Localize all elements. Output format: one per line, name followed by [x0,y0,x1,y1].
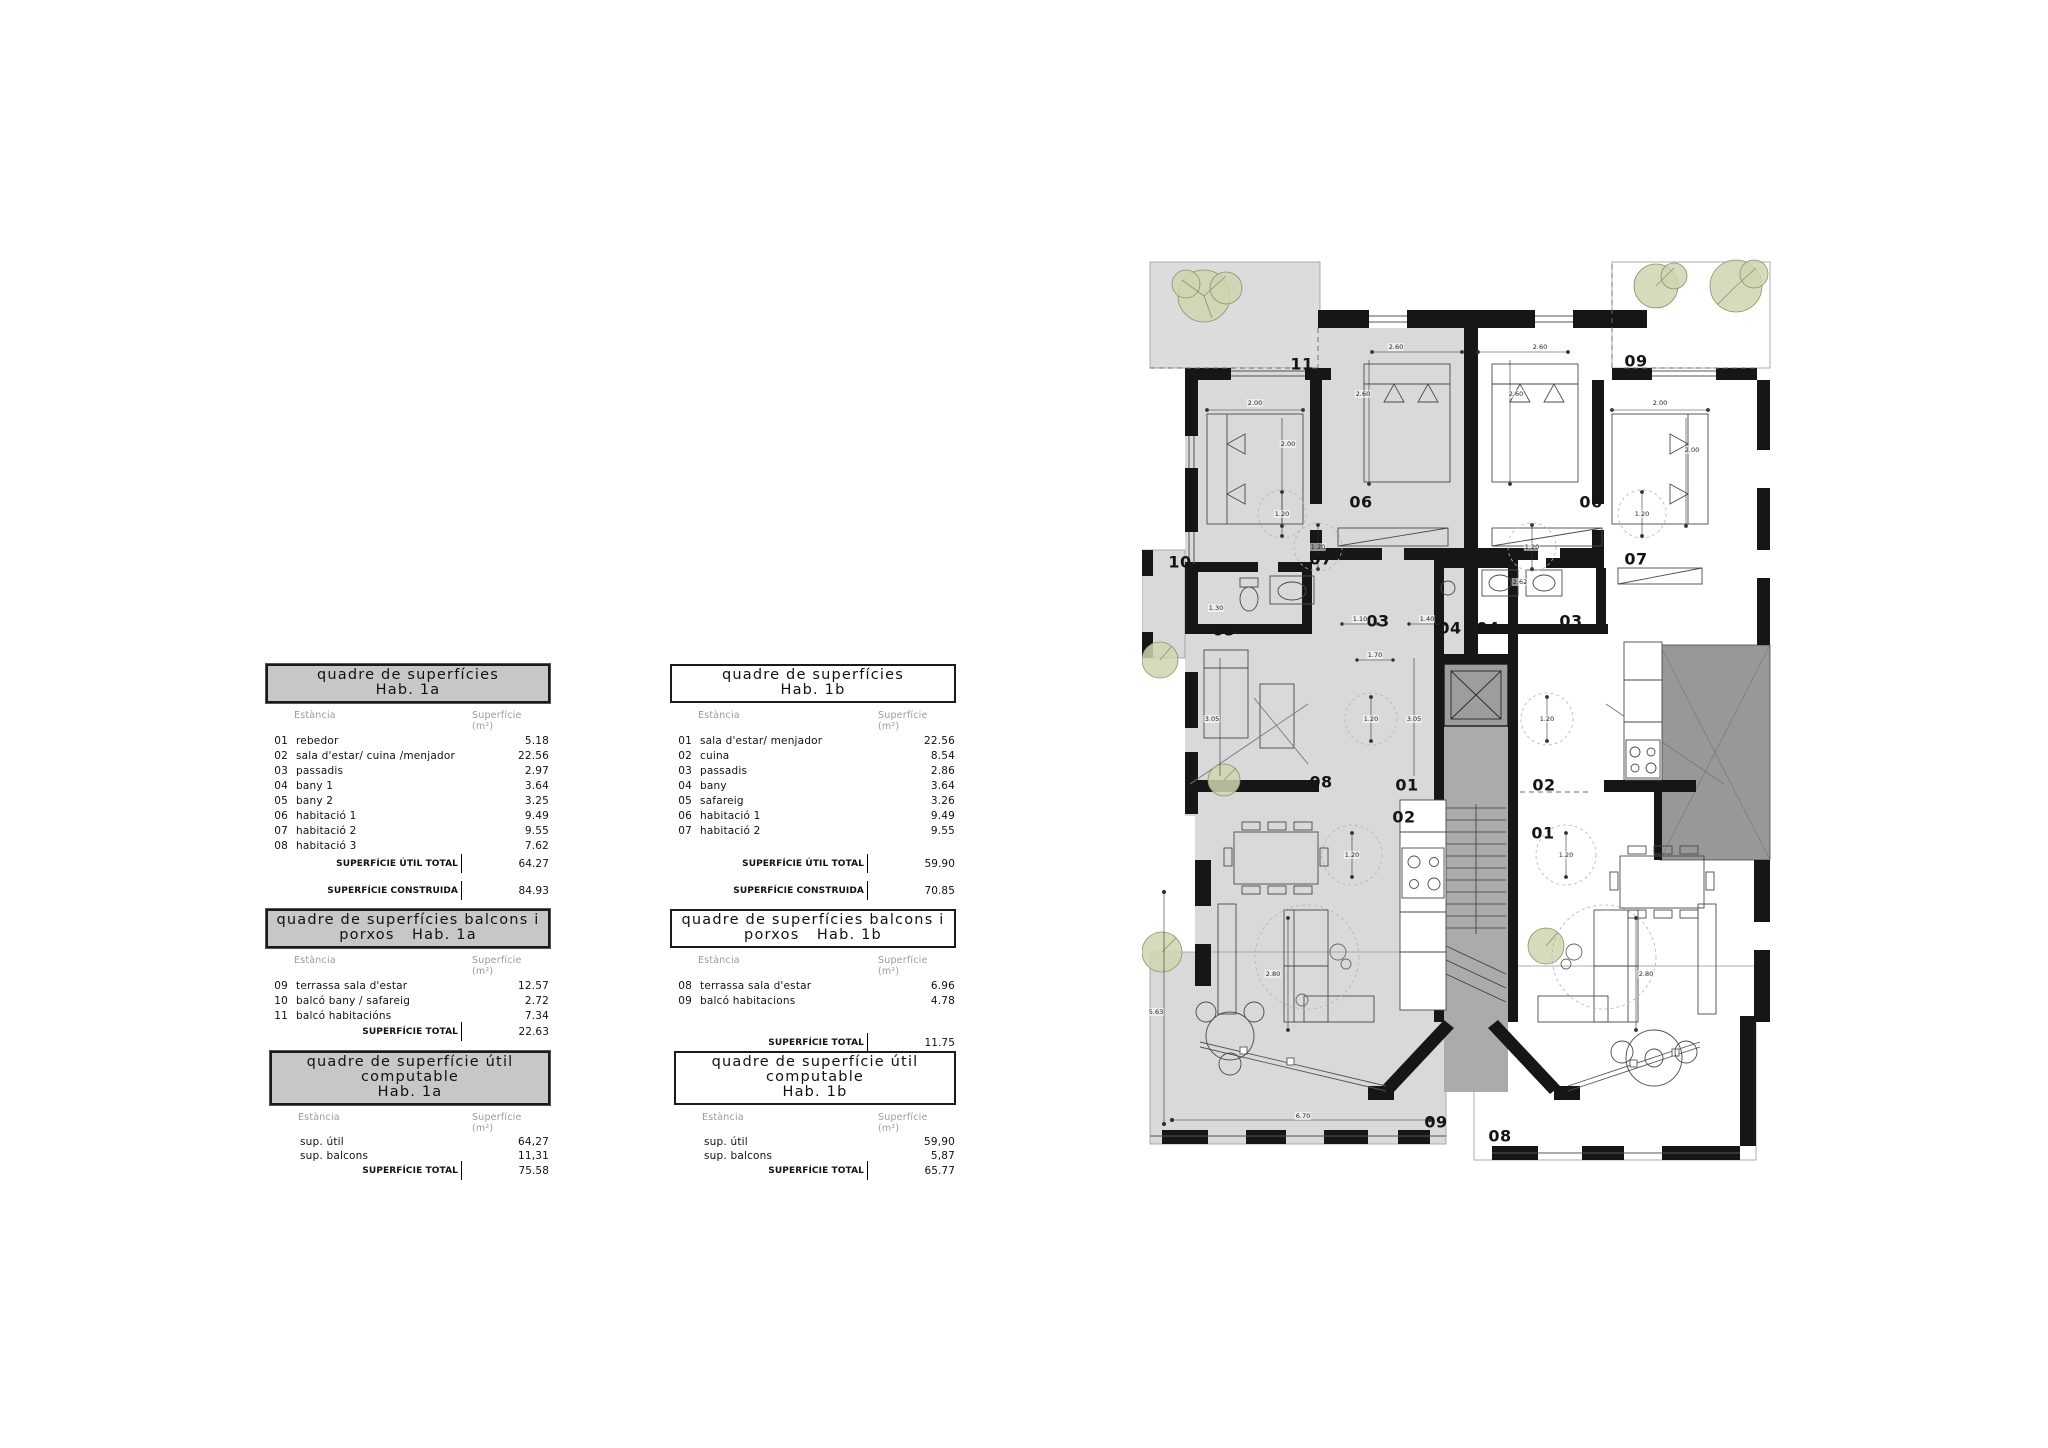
table-header: EstànciaSuperfície(m²) [266,710,550,732]
table-balcons-1a: quadre de superfícies balcons iporxos Ha… [266,909,550,1039]
table-row: sup. balcons11,31 [270,1150,550,1164]
table-title: quadre de superfíciesHab. 1b [670,664,956,703]
table-title: quadre de superfície útil computableHab.… [674,1051,956,1105]
table-row: 03passadis2.86 [670,764,956,779]
table-total-row: SUPERFÍCIE TOTAL22.63 [266,1025,550,1039]
table-header: EstànciaSuperfície(m²) [674,1112,956,1134]
porch-dark [1660,645,1770,860]
bed-icon [1492,364,1578,482]
plan-sheet: quadre de superfíciesHab. 1aEstànciaSupe… [0,0,2048,1448]
table-row: 07habitació 29.55 [266,824,550,839]
floor-plan-drawing [1142,252,1772,1187]
bed-icon [1612,414,1708,524]
table-row: 08habitació 37.62 [266,839,550,854]
table-row: 02cuina8.54 [670,749,956,764]
table-title: quadre de superfíciesHab. 1a [266,664,550,703]
table-superficies-1b: quadre de superfíciesHab. 1bEstànciaSupe… [670,664,956,898]
table-total-row: SUPERFÍCIE CONSTRUIDA70.85 [670,884,956,898]
sink-icon [1526,570,1562,596]
wardrobe-icon [1618,568,1702,584]
table-header: EstànciaSuperfície(m²) [270,1112,550,1134]
table-row: 04bany 13.64 [266,779,550,794]
table-row: 09balcó habitacions4.78 [670,994,956,1009]
table-row: 06habitació 19.49 [266,809,550,824]
table-row: sup. útil59,90 [674,1136,956,1150]
table-util-computable-1a: quadre de superfície útil computableHab.… [270,1051,550,1178]
table-row: 05bany 23.25 [266,794,550,809]
table-row: 07habitació 29.55 [670,824,956,839]
table-row: 10balcó bany / safareig2.72 [266,994,550,1009]
table-row: sup. balcons5,87 [674,1150,956,1164]
table-row: 05safareig3.26 [670,794,956,809]
table-title: quadre de superfícies balcons iporxos Ha… [266,909,550,948]
table-header: EstànciaSuperfície(m²) [266,955,550,977]
kitchen-counter [1624,642,1662,780]
table-row: 02sala d'estar/ cuina /menjador22.56 [266,749,550,764]
table-row: 06habitació 19.49 [670,809,956,824]
table-row: 11balcó habitacións7.34 [266,1009,550,1024]
table-total-row: SUPERFÍCIE CONSTRUIDA84.93 [266,884,550,898]
table-total-row: SUPERFÍCIE ÚTIL TOTAL59.90 [670,857,956,871]
table-header: EstànciaSuperfície(m²) [670,710,956,732]
table-total-row: SUPERFÍCIE ÚTIL TOTAL64.27 [266,857,550,871]
table-row: 01sala d'estar/ menjador22.56 [670,734,956,749]
table-row: 01rebedor5.18 [266,734,550,749]
table-title: quadre de superfícies balcons iporxos Ha… [670,909,956,948]
table-row: sup. útil64,27 [270,1136,550,1150]
table-total-row: SUPERFÍCIE TOTAL75.58 [270,1164,550,1178]
table-superficies-1a: quadre de superfíciesHab. 1aEstànciaSupe… [266,664,550,898]
table-row: 03passadis2.97 [266,764,550,779]
table-util-computable-1b: quadre de superfície útil computableHab.… [674,1051,956,1178]
floor-plan: 110906060707100503040403080102020109082.… [1142,252,1772,1187]
table-header: EstànciaSuperfície(m²) [670,955,956,977]
table-total-row: SUPERFÍCIE TOTAL65.77 [674,1164,956,1178]
table-balcons-1b: quadre de superfícies balcons iporxos Ha… [670,909,956,1050]
table-row: 09terrassa sala d'estar12.57 [266,979,550,994]
table-row: 08terrassa sala d'estar6.96 [670,979,956,994]
table-total-row: SUPERFÍCIE TOTAL11.75 [670,1036,956,1050]
kitchen-counter [1400,800,1446,1010]
table-title: quadre de superfície útil computableHab.… [270,1051,550,1105]
table-row: 04bany3.64 [670,779,956,794]
